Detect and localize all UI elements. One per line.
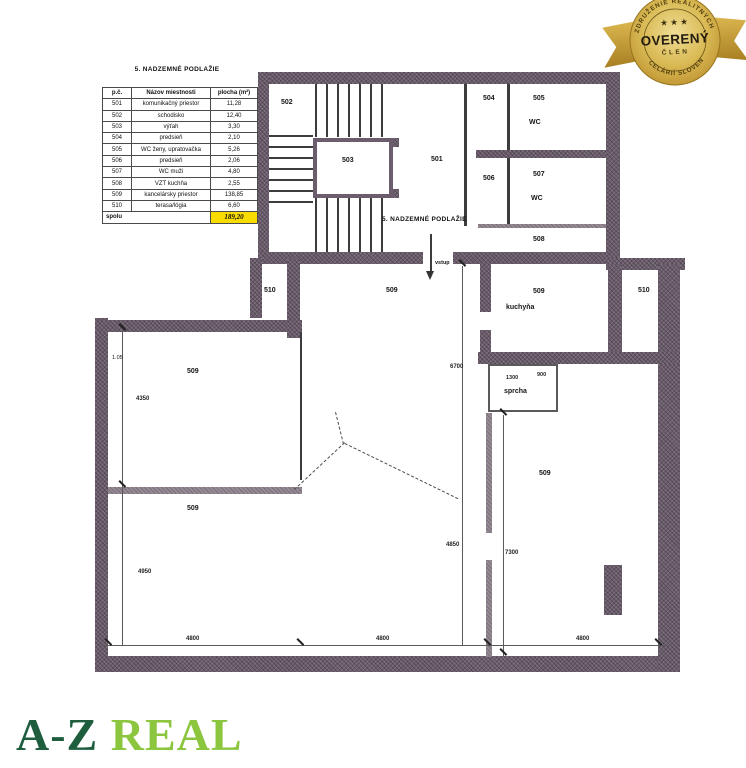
schedule-row: 503výťah3,30 [103, 121, 258, 132]
wc-label-2: WC [531, 195, 543, 202]
plan-note: 1.05 [112, 355, 123, 361]
total-area-value: 189,20 [211, 212, 258, 223]
schedule-row: 509kancelársky priestor138,85 [103, 189, 258, 200]
dim-1300: 1300 [506, 375, 518, 381]
schedule-row: 506predsieň2,06 [103, 155, 258, 166]
room-label-504: 504 [483, 95, 495, 102]
entrance-label: vstup [435, 260, 450, 266]
room-label-509-topleft: 509 [187, 368, 199, 375]
room-label-509-bottomright: 509 [539, 470, 551, 477]
schedule-row: 508VZT kuchňa2,55 [103, 178, 258, 189]
schedule-row: 507WC muži4,80 [103, 167, 258, 178]
plan-floor-label: 5. NADZEMNÉ PODLAŽIE [382, 216, 467, 223]
room-label-503: 503 [342, 157, 354, 164]
dim-4850: 4850 [446, 542, 459, 548]
column-header: Názov miestnosti [132, 88, 211, 99]
logo-az: A-Z [16, 709, 98, 760]
logo-real: REAL [111, 709, 243, 760]
room-label-507: 507 [533, 171, 545, 178]
schedule-row: 510terasa/lógia6,60 [103, 200, 258, 211]
schedule-title: 5. NADZEMNÉ PODLAŽIE [97, 66, 257, 73]
wc-label-1: WC [529, 119, 541, 126]
dim-7300: 7300 [505, 550, 518, 556]
dim-4350: 4350 [136, 396, 149, 402]
dim-6700: 6700 [450, 364, 463, 370]
room-schedule-table: p.č.Názov miestnostiplocha (m²)501komuni… [102, 87, 258, 224]
schedule-row: 504predsieň2,10 [103, 133, 258, 144]
room-label-505: 505 [533, 95, 545, 102]
room-label-506: 506 [483, 175, 495, 182]
schedule-row: 501komunikačný priestor11,28 [103, 99, 258, 110]
column-header: p.č. [103, 88, 132, 99]
room-label-501: 501 [431, 156, 443, 163]
dim-900: 900 [537, 372, 546, 378]
column-header: plocha (m²) [211, 88, 258, 99]
dim-4950: 4950 [138, 569, 151, 575]
scanned-floorplan-page: 5. NADZEMNÉ PODLAŽIE p.č.Názov miestnost… [0, 0, 746, 768]
badge-stars-icon: ★ ★ ★ [660, 16, 688, 27]
entrance-arrow [430, 234, 432, 272]
room-label-510-right: 510 [638, 287, 650, 294]
dim-4800-mid: 4800 [376, 636, 389, 642]
shower-label: sprcha [504, 388, 527, 395]
room-label-508: 508 [533, 236, 545, 243]
room-label-509-center: 509 [386, 287, 398, 294]
room-label-509-bottomleft: 509 [187, 505, 199, 512]
room-label-510-left: 510 [264, 287, 276, 294]
room-label-509-kitchen: 509 [533, 288, 545, 295]
room-label-502: 502 [281, 99, 293, 106]
kitchen-label: kuchyňa [506, 304, 534, 311]
agency-logo: A-Z REAL [16, 708, 243, 761]
elevator-shaft [313, 138, 393, 198]
total-row: spolu189,20 [103, 212, 258, 223]
entrance-arrowhead-icon [426, 271, 434, 280]
dim-4800-left: 4800 [186, 636, 199, 642]
schedule-row: 502schodisko12,40 [103, 110, 258, 121]
dim-4800-right: 4800 [576, 636, 589, 642]
schedule-row: 505WC ženy, upratovačka5,26 [103, 144, 258, 155]
certified-badge: ZDRUŽENIE REALITNÝCH KANCELÁRIÍ SLOVENSK… [600, 0, 746, 104]
